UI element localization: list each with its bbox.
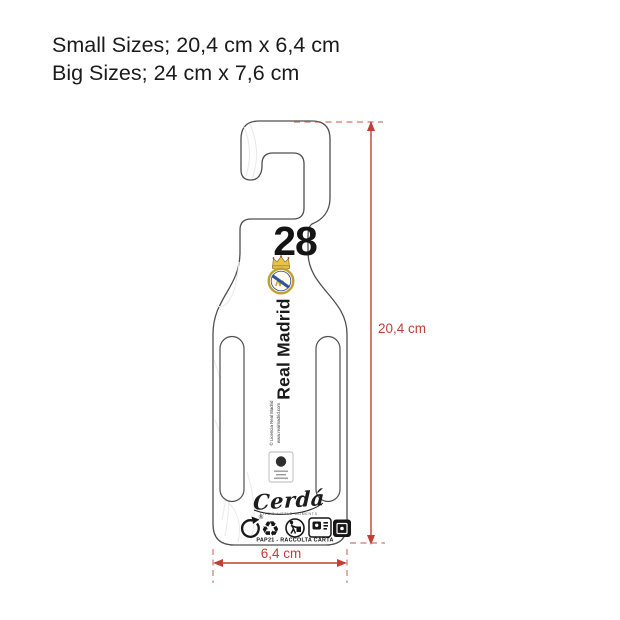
certification-stamp <box>269 452 293 482</box>
diagram-graphics: ® ♻ <box>0 0 620 620</box>
license-line1: © Licencia Real Madrid <box>269 401 276 446</box>
left-slot <box>220 337 244 502</box>
paper-label-icon <box>309 518 331 537</box>
size-number: 28 <box>273 221 317 262</box>
height-dimension-label: 20,4 cm <box>378 321 426 336</box>
license-line2: www.realmadrid.com <box>276 401 283 446</box>
width-dimension-label: 6,4 cm <box>261 546 302 561</box>
size-note-big: Big Sizes; 24 cm x 7,6 cm <box>52 61 299 86</box>
brand-logo-text: Cerdá <box>253 485 326 515</box>
license-text: © Licencia Real Madrid www.realmadrid.co… <box>269 401 282 446</box>
team-name-vertical: Real Madrid <box>274 298 295 399</box>
product-dimension-diagram: ® ♻ <box>0 0 620 620</box>
size-note-small: Small Sizes; 20,4 cm x 6,4 cm <box>52 33 340 58</box>
right-slot <box>316 337 340 502</box>
bin-label-icon <box>333 520 351 538</box>
recycling-code-label: PAP21 - RACCOLTA CARTA <box>256 537 333 543</box>
brand-tagline: LIFE'S LITTLE MOMENTS <box>260 512 317 516</box>
